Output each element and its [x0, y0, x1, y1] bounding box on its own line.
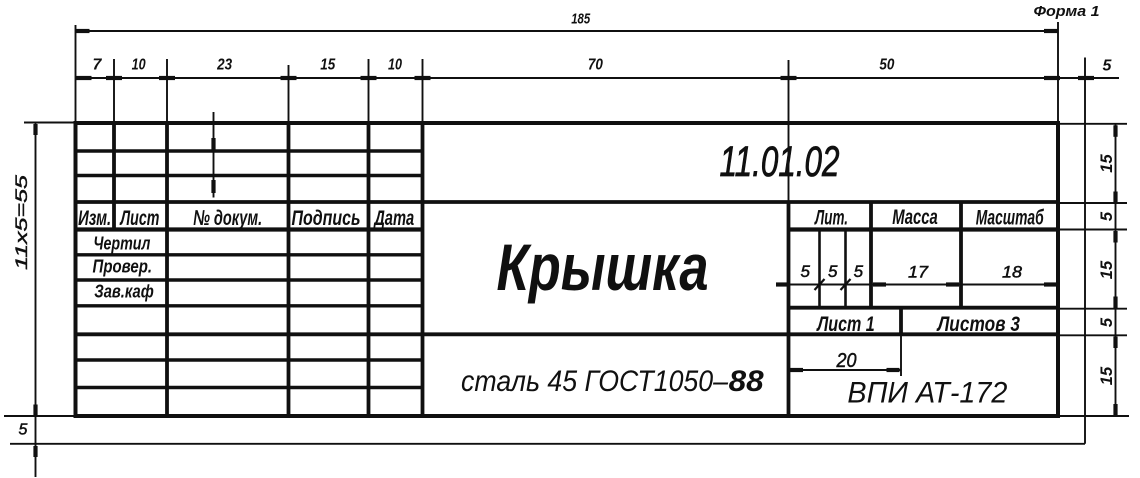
svg-text:№ докум.: № докум. — [193, 206, 262, 230]
svg-text:Подпись: Подпись — [292, 206, 361, 230]
svg-text:Масштаб: Масштаб — [976, 205, 1044, 229]
svg-text:Лист 1: Лист 1 — [816, 312, 875, 336]
svg-text:5: 5 — [854, 262, 864, 281]
svg-text:Дата: Дата — [373, 206, 414, 230]
svg-text:50: 50 — [879, 57, 894, 74]
svg-text:Форма 1: Форма 1 — [1034, 3, 1100, 20]
svg-text:10: 10 — [132, 57, 146, 74]
svg-text:5: 5 — [19, 422, 28, 439]
svg-text:5: 5 — [1098, 317, 1116, 327]
svg-text:Листов 3: Листов 3 — [936, 312, 1020, 336]
svg-text:70: 70 — [588, 57, 603, 74]
svg-text:Лист: Лист — [119, 206, 159, 230]
svg-text:Крышка: Крышка — [497, 230, 709, 304]
svg-text:5: 5 — [1098, 211, 1116, 221]
svg-text:11х5=55: 11х5=55 — [12, 174, 31, 270]
svg-text:5: 5 — [800, 262, 810, 281]
svg-text:15: 15 — [320, 57, 336, 74]
svg-text:11.01.02: 11.01.02 — [720, 138, 840, 186]
svg-text:23: 23 — [216, 57, 232, 74]
svg-text:88: 88 — [729, 365, 764, 398]
svg-text:5: 5 — [1103, 58, 1113, 75]
svg-text:сталь 45 ГОСТ1050–: сталь 45 ГОСТ1050– — [461, 365, 728, 398]
svg-text:Провер.: Провер. — [93, 256, 153, 277]
svg-text:15: 15 — [1098, 154, 1116, 173]
svg-text:15: 15 — [1098, 260, 1116, 279]
svg-text:20: 20 — [836, 350, 857, 372]
svg-text:ВПИ АТ-172: ВПИ АТ-172 — [847, 377, 1007, 410]
svg-text:Изм.: Изм. — [78, 206, 111, 230]
svg-text:Лит.: Лит. — [814, 205, 848, 229]
svg-text:Масса: Масса — [892, 205, 938, 229]
svg-text:185: 185 — [571, 12, 591, 28]
svg-text:18: 18 — [1002, 263, 1023, 282]
svg-text:17: 17 — [908, 263, 929, 282]
svg-text:Зав.каф: Зав.каф — [94, 281, 154, 302]
svg-text:7: 7 — [93, 57, 103, 74]
svg-text:5: 5 — [828, 262, 838, 281]
svg-text:Чертил: Чертил — [93, 233, 150, 254]
svg-text:10: 10 — [388, 57, 402, 74]
svg-text:15: 15 — [1098, 366, 1116, 385]
